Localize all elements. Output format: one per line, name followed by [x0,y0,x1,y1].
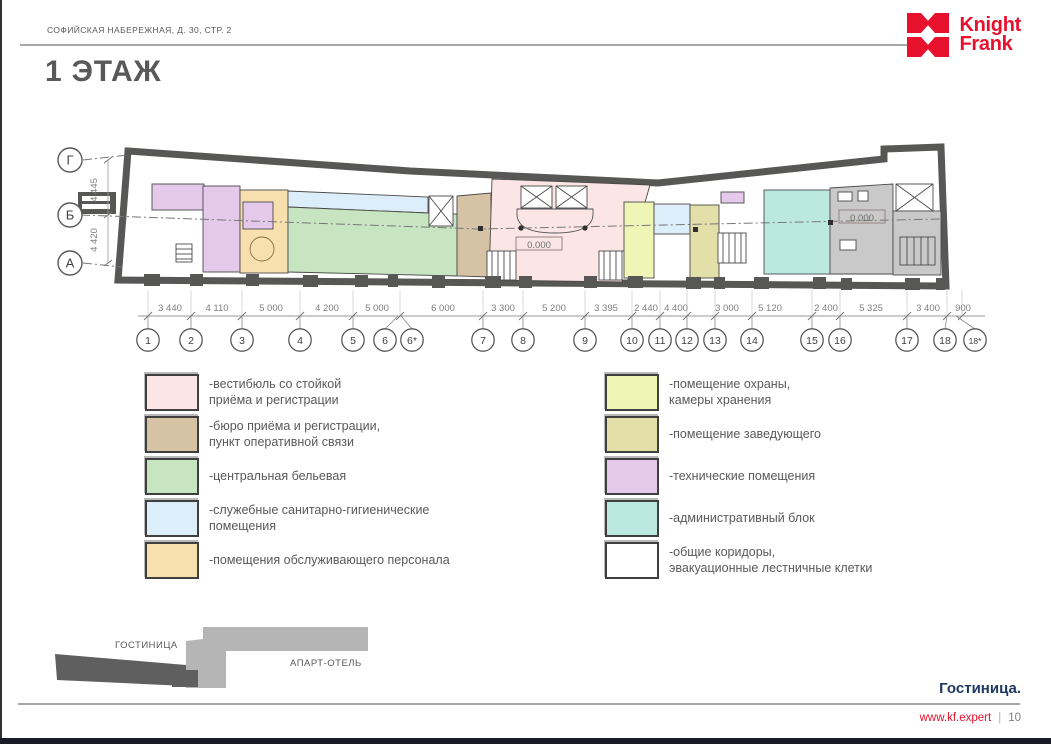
window-bottom-bar [0,738,1051,744]
bubble-connector [956,316,975,329]
footer-divider [18,703,1020,705]
grid-bubble-label: 3 [239,335,245,347]
legend-item: -центральная бельевая [145,458,605,495]
vertical-dim-label: 4 445 [89,178,100,202]
room-sanitary-small [654,204,690,234]
legend-item: -вестибюль со стойкой приёма и регистрац… [145,374,605,411]
floor-plan-svg: 3 4404 1105 0004 2005 0006 0003 3005 200… [30,130,990,360]
legend-swatch [605,374,659,411]
dim-label: 3 000 [715,303,739,314]
legend-label: -вестибюль со стойкой приёма и регистрац… [209,377,341,408]
page-number: 10 [1008,712,1021,724]
legend-item: -помещение заведующего [605,416,1051,453]
grid-bubble-label: 18 [939,335,951,347]
legend-swatch [605,458,659,495]
dim-label: 5 325 [859,303,883,314]
row-axes: ГБА [58,148,82,275]
legend-label: -центральная бельевая [209,469,346,485]
reception-desk [517,209,593,233]
room-security [624,202,654,278]
legend-label: -помещение охраны, камеры хранения [669,377,790,408]
legend-item: -технические помещения [605,458,1051,495]
grid-bubble-label: 13 [709,335,721,347]
legend-label: -служебные санитарно-гигиенические помещ… [209,503,429,534]
level-mark-label: 0.000 [527,240,551,251]
vertical-dim-label: 4 420 [89,228,100,252]
dim-label: 4 200 [315,303,339,314]
dim-label: 5 000 [365,303,389,314]
minimap-hotel-step [172,670,198,687]
level-mark-label: 0.000 [850,213,874,224]
grid-bubble-label: 8 [520,335,526,347]
dim-label: 3 400 [916,303,940,314]
room-technical [243,202,273,229]
dim-label: 2 400 [814,303,838,314]
grid-bubble-label: 15 [806,335,818,347]
grid-bubbles: 1234566*78910111213141516171818* [137,316,986,351]
grid-bubble-label: 17 [901,335,913,347]
legend-column-right: -помещение охраны, камеры хранения-помещ… [605,374,1051,584]
grid-bubble-label: 16 [834,335,846,347]
bubble-connector [385,316,398,329]
legend-label: -бюро приёма и регистрации, пункт операт… [209,419,380,450]
dim-label: 2 440 [634,303,658,314]
legend-swatch [145,500,199,537]
legend-swatch [605,416,659,453]
grid-bubble-label: 1 [145,335,151,347]
grid-bubble-label: 9 [582,335,588,347]
dim-label: 5 200 [542,303,566,314]
grid-bubble-label: 6* [407,335,417,347]
page-title: 1 ЭТАЖ [45,55,161,89]
knight-frank-logo: Knight Frank [905,13,1021,57]
legend-swatch [605,542,659,579]
grid-bubble-label: 5 [350,335,356,347]
footer-separator: | [998,712,1001,724]
dim-label: 5 000 [259,303,283,314]
dim-label: 6 000 [431,303,455,314]
dim-labels: 3 4404 1105 0004 2005 0006 0003 3005 200… [158,303,971,314]
legend-label: -общие коридоры, эвакуационные лестничны… [669,545,872,576]
minimap-apart-label: АПАРТ-ОТЕЛЬ [290,658,362,669]
logo-word-2: Frank [959,35,1021,54]
legend-item: -помещения обслуживающего персонала [145,542,605,579]
legend-item: -служебные санитарно-гигиенические помещ… [145,500,605,537]
legend-label: -административный блок [669,511,815,527]
legend-item: -административный блок [605,500,1051,537]
header-divider [20,44,910,46]
room-admin-block [764,190,830,274]
room-manager [690,205,719,278]
bubble-connector [401,316,412,329]
legend-swatch [145,374,199,411]
knight-frank-mark-icon [905,13,951,57]
grid-bubble-label: 18* [969,336,982,346]
minimap-hotel-shape [55,654,186,686]
axis-label: А [66,256,75,271]
dim-label: 4 400 [664,303,688,314]
dim-label: 5 120 [758,303,782,314]
website-link[interactable]: www.kf.expert [920,712,992,724]
room-technical [152,184,204,210]
legend-label: -помещение заведующего [669,427,821,443]
legend-label: -помещения обслуживающего персонала [209,553,450,569]
legend-swatch [145,416,199,453]
rooms [152,179,941,282]
room-technical [203,186,240,272]
grid-bubble-label: 11 [655,335,666,347]
grid-bubble-label: 7 [480,335,486,347]
window-left-edge [0,0,2,744]
footer: www.kf.expert | 10 [920,712,1021,724]
legend-item: -общие коридоры, эвакуационные лестничны… [605,542,1051,579]
legend-column-left: -вестибюль со стойкой приёма и регистрац… [145,374,605,584]
room-reception-bureau [457,193,491,277]
grid-bubble-label: 14 [746,335,758,347]
axis-label: Б [66,208,75,223]
legend-swatch [145,458,199,495]
dim-label: 3 300 [491,303,515,314]
grid-bubble-label: 10 [626,335,638,347]
legend-swatch [145,542,199,579]
legend-swatch [605,500,659,537]
stairs [718,233,746,263]
section-name: Гостиница. [939,680,1021,697]
legend-item: -помещение охраны, камеры хранения [605,374,1051,411]
legend-item: -бюро приёма и регистрации, пункт операт… [145,416,605,453]
dim-label: 900 [955,303,971,314]
legend-label: -технические помещения [669,469,815,485]
dim-label: 3 395 [594,303,618,314]
grid-bubble-label: 12 [681,335,693,347]
minimap-hotel-label: ГОСТИНИЦА [115,640,178,651]
grid-bubble-label: 4 [297,335,303,347]
breadcrumb-address: СОФИЙСКАЯ НАБЕРЕЖНАЯ, Д. 30, СТР. 2 [47,25,232,35]
room-technical [721,192,744,203]
grid-bubble-label: 2 [188,335,194,347]
axis-label: Г [66,153,73,168]
dim-label: 4 110 [205,303,228,314]
grid-bubble-label: 6 [382,335,388,347]
dim-label: 3 440 [158,303,182,314]
